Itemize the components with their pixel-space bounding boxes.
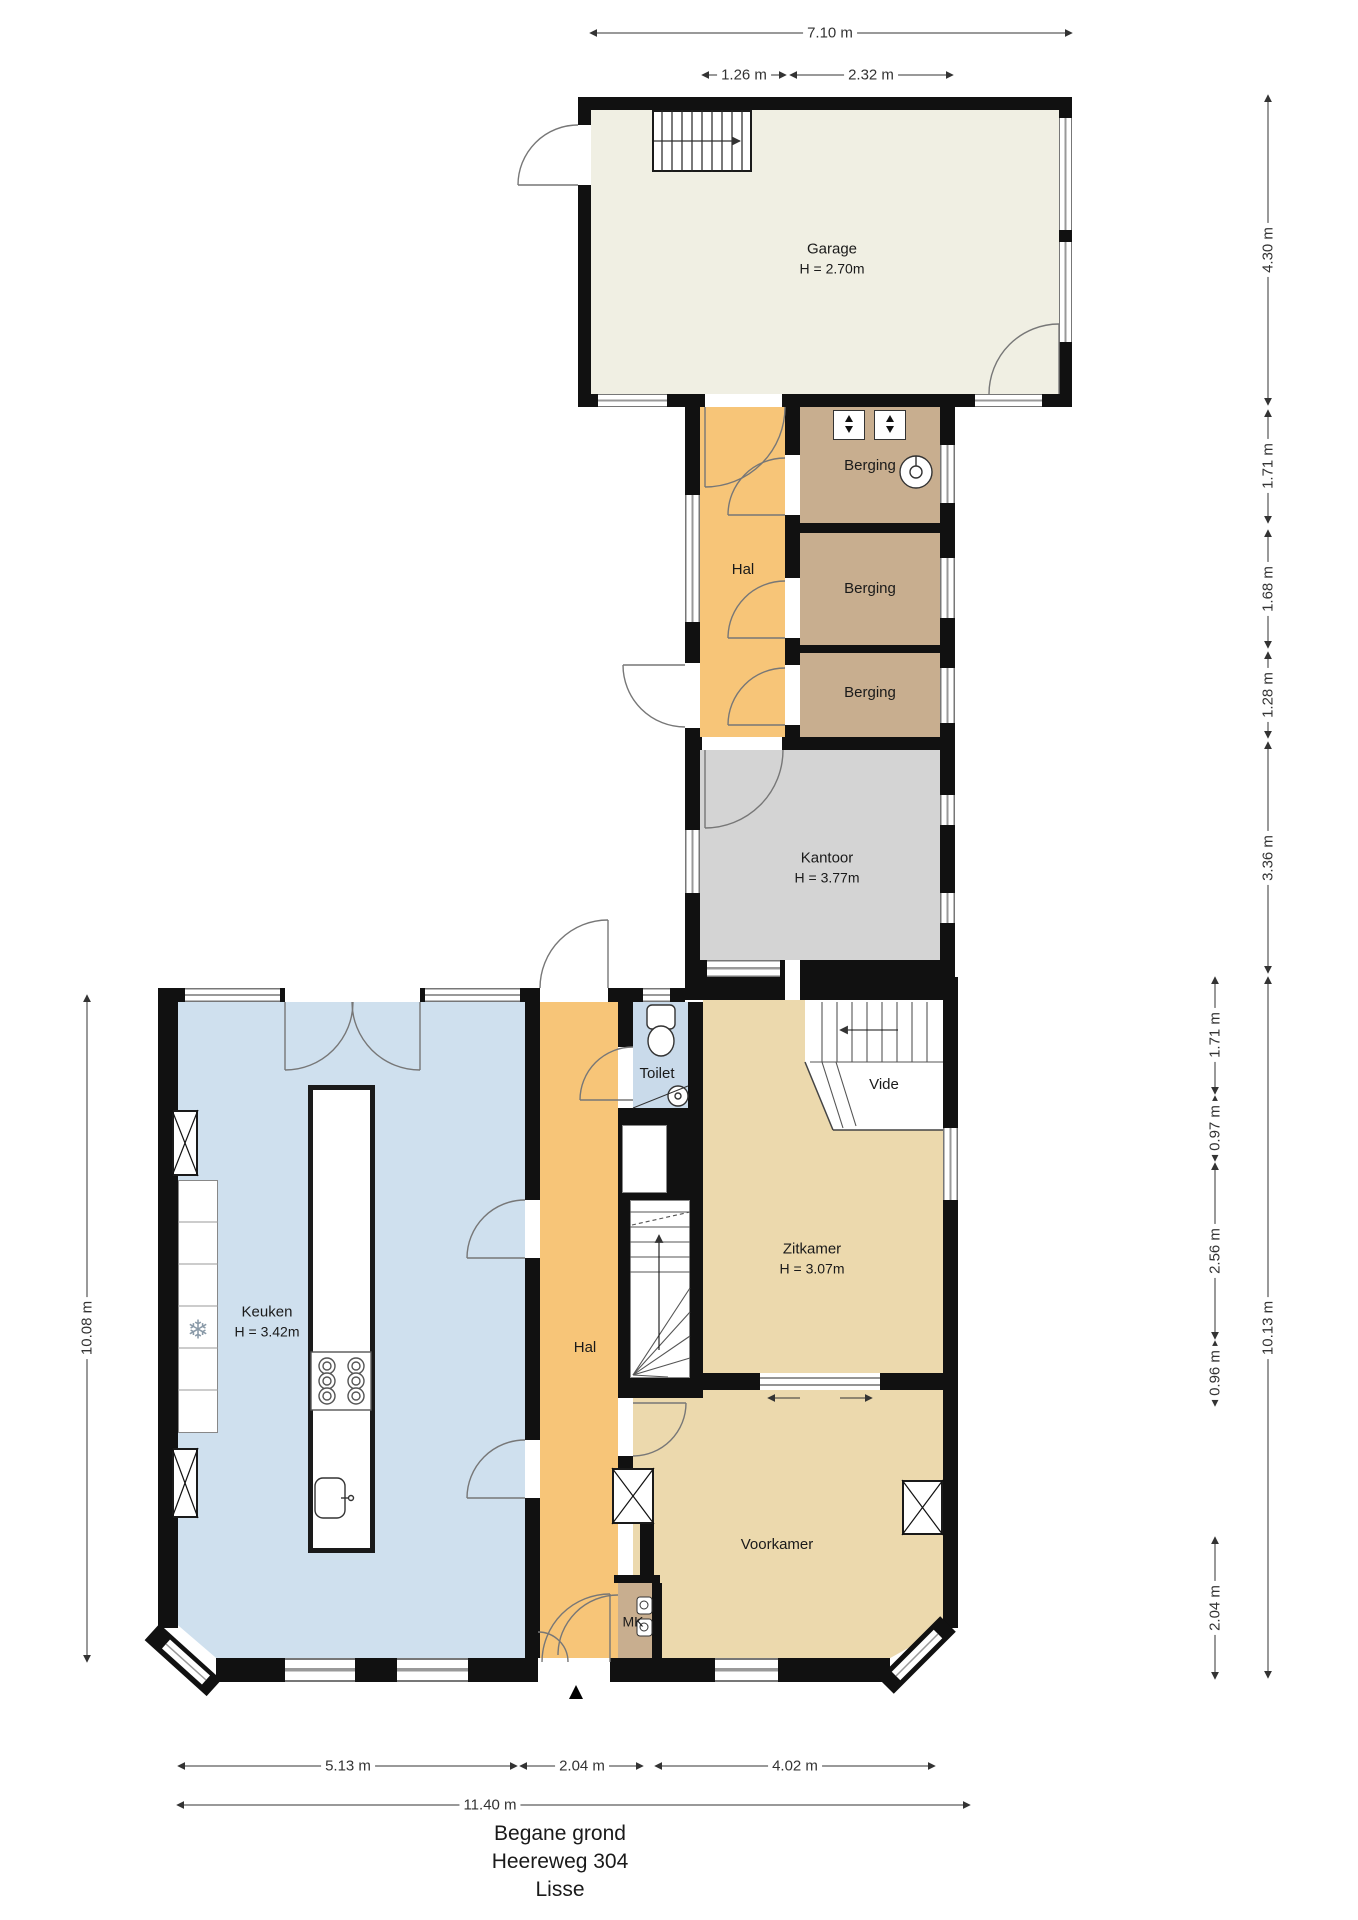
dim-top-total: 7.10 m [803, 25, 857, 42]
room-label-berging-3: Berging [844, 683, 896, 703]
dim-right-part-1: 1.71 m [1207, 1008, 1224, 1062]
room-height: H = 3.07m [780, 1260, 845, 1279]
dim-right-part-2: 0.97 m [1207, 1101, 1224, 1155]
dim-right-berging3: 1.28 m [1260, 668, 1277, 722]
dim-left-total: 10.08 m [79, 1297, 96, 1359]
main-stairwell [630, 1200, 690, 1378]
wall [943, 1000, 958, 1128]
dim-top-berging: 2.32 m [844, 67, 898, 84]
wall [940, 825, 955, 893]
wall [778, 1658, 890, 1682]
window [707, 960, 780, 977]
flue-box [902, 1480, 943, 1535]
washing-machine [833, 410, 865, 440]
wall [578, 97, 591, 125]
window [1059, 242, 1072, 342]
dim-right-berging2: 1.68 m [1260, 562, 1277, 616]
garage-stairs [652, 110, 752, 172]
room-name: Toilet [639, 1064, 674, 1084]
room-name: MK [623, 1613, 644, 1632]
door-gap [785, 455, 800, 515]
room-label-keuken: Keuken H = 3.42m [235, 1302, 300, 1341]
room-vide [805, 1000, 943, 1130]
door-gap [525, 1440, 540, 1498]
window [940, 893, 955, 923]
window [1059, 118, 1072, 230]
room-voorkamer [633, 1390, 943, 1658]
window [940, 795, 955, 825]
dim-bottom-keuken: 5.13 m [321, 1758, 375, 1775]
room-name: Hal [574, 1338, 597, 1358]
window [598, 394, 667, 407]
room-name: Voorkamer [741, 1535, 814, 1555]
window [940, 668, 955, 723]
room-name: Kantoor [795, 848, 860, 868]
wall [614, 1575, 660, 1583]
door-gap [705, 394, 782, 407]
wall [685, 977, 958, 1000]
window [940, 558, 955, 618]
dim-bottom-voorkamer: 4.02 m [768, 1758, 822, 1775]
door-gap [785, 960, 800, 1000]
room-label-berging-1: Berging [844, 456, 896, 476]
wall [785, 523, 940, 533]
window [943, 1128, 958, 1200]
door-gap [702, 737, 782, 750]
dim-top-hal: 1.26 m [717, 67, 771, 84]
wall [610, 1658, 715, 1682]
wall [525, 1258, 540, 1440]
door-gap [785, 665, 800, 725]
window [715, 1658, 778, 1682]
room-height: H = 3.77m [795, 869, 860, 888]
wall [158, 988, 185, 1002]
wall [520, 988, 540, 1002]
room-name: Vide [869, 1075, 899, 1095]
wall [685, 737, 702, 750]
room-label-kantoor: Kantoor H = 3.77m [795, 848, 860, 887]
wall [608, 988, 643, 1002]
window [975, 394, 1042, 407]
dim-right-part-5: 2.04 m [1207, 1581, 1224, 1635]
room-label-voorkamer: Voorkamer [741, 1535, 814, 1555]
wall [685, 750, 700, 830]
wall [782, 737, 955, 750]
room-height: H = 3.42m [235, 1323, 300, 1342]
wall [685, 622, 700, 665]
flue-box [172, 1448, 198, 1518]
room-label-hal-lower: Hal [574, 1338, 597, 1358]
window [643, 988, 670, 1002]
wall [688, 1002, 703, 1108]
window [425, 988, 520, 1002]
wall [158, 1002, 178, 1628]
footer-street: Heereweg 304 [400, 1848, 720, 1876]
room-label-zitkamer: Zitkamer H = 3.07m [780, 1239, 845, 1278]
wall [940, 750, 955, 795]
room-label-berging-2: Berging [844, 579, 896, 599]
door-gap [540, 988, 608, 1002]
room-hal-lower [540, 1002, 618, 1658]
room-name: Berging [844, 683, 896, 703]
window [397, 1658, 468, 1682]
wall [943, 1200, 958, 1628]
dim-right-berging1: 1.71 m [1260, 439, 1277, 493]
kitchen-island [308, 1085, 375, 1553]
stair-cupboard [622, 1125, 667, 1193]
window [940, 445, 955, 503]
room-name: Berging [844, 579, 896, 599]
footer-city: Lisse [400, 1876, 720, 1904]
window [685, 830, 700, 893]
dim-right-lower-total: 10.13 m [1260, 1297, 1277, 1359]
wall [525, 1498, 540, 1658]
floorplan: Garage H = 2.70m Hal Berging Berging Ber… [0, 0, 1358, 1920]
wall [703, 1373, 760, 1390]
washing-machine [874, 410, 906, 440]
wall [670, 988, 685, 1002]
room-label-meterkast: MK [623, 1613, 644, 1632]
wall [578, 185, 591, 407]
flue-box [612, 1468, 654, 1524]
entrance-marker-icon: ▲ [564, 1678, 588, 1706]
dim-right-part-3: 2.56 m [1207, 1224, 1224, 1278]
room-name: Berging [844, 456, 896, 476]
window [685, 495, 700, 622]
window [285, 1658, 355, 1682]
room-toilet [633, 1002, 688, 1108]
door-gap [760, 1373, 880, 1390]
room-name: Hal [732, 560, 755, 580]
wall [578, 97, 1072, 110]
flue-box [172, 1110, 198, 1176]
wall [785, 645, 940, 653]
door-gap [618, 1047, 633, 1100]
wall [652, 1583, 662, 1658]
room-label-hal-upper: Hal [732, 560, 755, 580]
wall [618, 1002, 633, 1047]
dim-right-garage: 4.30 m [1260, 223, 1277, 277]
wall [216, 1658, 285, 1682]
dim-right-kantoor: 3.36 m [1260, 831, 1277, 885]
room-height: H = 2.70m [800, 260, 865, 279]
wall [525, 1002, 540, 1200]
door-gap [685, 663, 700, 728]
dim-right-part-4: 0.96 m [1207, 1346, 1224, 1400]
wall [785, 407, 800, 455]
door-gap [618, 1403, 633, 1456]
wall [355, 1658, 397, 1682]
door-gap [285, 988, 420, 1002]
room-name: Keuken [235, 1302, 300, 1322]
wall [880, 1373, 943, 1390]
wall [685, 407, 700, 495]
dim-bottom-total: 11.40 m [459, 1797, 520, 1814]
door-gap [785, 578, 800, 638]
window [185, 988, 280, 1002]
room-label-toilet: Toilet [639, 1064, 674, 1084]
room-name: Garage [800, 239, 865, 259]
freezer-icon: ❄ [187, 1315, 209, 1346]
footer-floor: Begane grond [400, 1820, 720, 1848]
room-name: Zitkamer [780, 1239, 845, 1259]
dim-bottom-hal: 2.04 m [555, 1758, 609, 1775]
kitchen-counter [178, 1180, 218, 1433]
plan-footer: Begane grond Heereweg 304 Lisse [400, 1820, 720, 1904]
room-label-vide: Vide [869, 1075, 899, 1095]
room-label-garage: Garage H = 2.70m [800, 239, 865, 278]
wall [468, 1658, 538, 1682]
door-gap [525, 1200, 540, 1258]
